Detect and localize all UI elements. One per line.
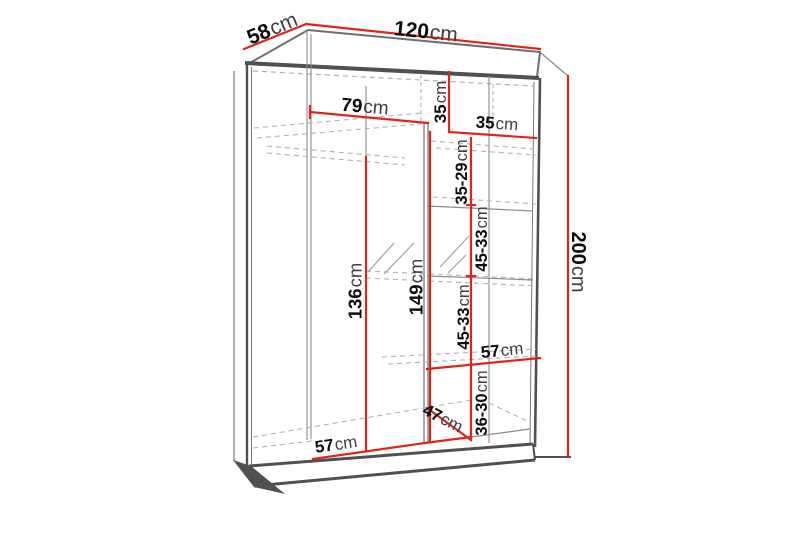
right-front-edge [535, 78, 540, 447]
height-dim-top-connector [541, 53, 568, 76]
dim-label-depth-47: 47cm [420, 400, 467, 436]
right-front-edge-inner [530, 82, 534, 444]
dimension-lines [244, 24, 568, 459]
dim-label-top-35v: 35cm [431, 81, 450, 124]
dim-line-floor-mid [425, 437, 471, 443]
shelves-hidden-edges [366, 141, 536, 364]
dim-label-mid-149: 149cm [405, 259, 426, 316]
dim-label-gap-4533-lower: 45-33cm [455, 284, 473, 349]
dim-line-top-35h [449, 132, 536, 138]
dim-label-right-57: 57cm [480, 339, 524, 362]
dim-label-gap-3630: 36-30cm [473, 370, 491, 435]
diagram-canvas: 58cm 120cm 200cm 79cm 35cm 35cm 35-29cm … [0, 0, 800, 533]
plinth-bottom-edge [254, 460, 535, 486]
shelf-lower [428, 276, 533, 280]
dim-label-top-35h: 35cm [475, 112, 519, 134]
dim-label-inner-79: 79cm [340, 95, 389, 120]
wardrobe-dimension-diagram: 58cm 120cm 200cm 79cm 35cm 35cm 35-29cm … [0, 0, 800, 533]
wardrobe-structure [233, 30, 571, 494]
dim-label-gap-3529: 35-29cm [453, 139, 471, 204]
dim-label-gap-4533-upper: 45-33cm [473, 206, 491, 271]
dim-label-left-136: 136cm [344, 263, 365, 320]
dim-label-height-200: 200cm [567, 231, 589, 292]
